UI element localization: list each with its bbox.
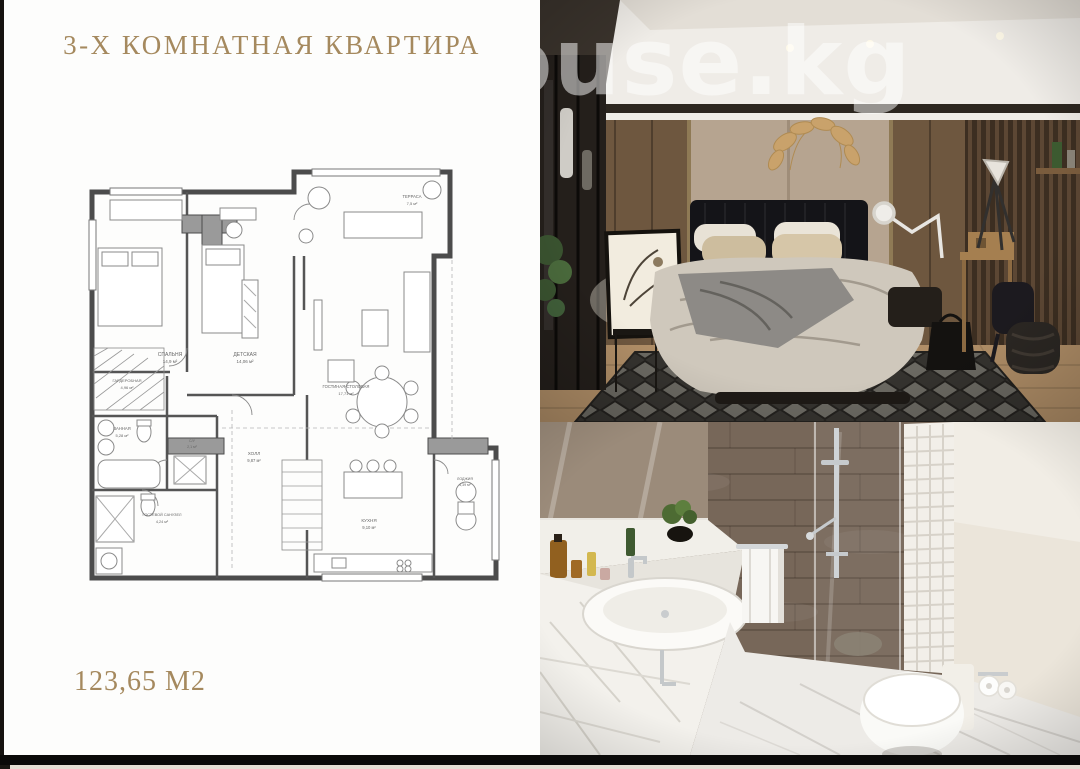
total-area-label: 123,65 М2 (74, 666, 206, 698)
room-label-guest-wc: ГОСТЕВОЙ САНУЗЕЛ (143, 513, 182, 517)
room-area-hall: 9,87 м² (247, 458, 261, 463)
room-label-wc: С/У (189, 439, 196, 443)
room-area-loggia: 4,39 м² (459, 483, 471, 487)
room-label-wardrobe: ГАРДЕРОБНАЯ (112, 378, 141, 383)
bedroom-render (540, 0, 1080, 422)
room-area-children: 14,06 м² (236, 359, 254, 364)
listing-page: 3-Х КОМНАТНАЯ КВАРТИРА (0, 0, 1080, 769)
room-area-living: 17,71 м² (338, 391, 354, 396)
left-edge-bar (0, 0, 4, 769)
floorplan-panel: 3-Х КОМНАТНАЯ КВАРТИРА (4, 0, 540, 755)
room-label-loggia: ЛОДЖИЯ (457, 477, 473, 481)
room-area-terrace: 7,5 м² (407, 201, 418, 206)
room-area-guest-wc: 4,24 м² (156, 520, 169, 524)
floor-plan-drawing: СПАЛЬНЯ 14,9 м² ДЕТСКАЯ 14,06 м² ТЕРРАСА… (82, 160, 502, 592)
room-label-bedroom: СПАЛЬНЯ (158, 352, 183, 358)
bathroom-vignette (540, 422, 1080, 755)
bottom-frame-bar (0, 755, 1080, 765)
room-area-wc: 2,1 м² (187, 445, 197, 449)
bathroom-photo (540, 422, 1080, 755)
bedroom-vignette (540, 0, 1080, 422)
floor-plan: СПАЛЬНЯ 14,9 м² ДЕТСКАЯ 14,06 м² ТЕРРАСА… (82, 160, 502, 592)
room-label-terrace: ТЕРРАСА (402, 194, 421, 199)
room-area-kitchen: 9,10 м² (362, 525, 376, 530)
room-label-living: ГОСТИНАЯ-СТОЛОВАЯ (323, 384, 370, 389)
page-title: 3-Х КОМНАТНАЯ КВАРТИРА (4, 30, 540, 61)
room-area-bath: 5,28 м² (116, 433, 130, 438)
room-label-hall: ХОЛЛ (248, 451, 260, 456)
bedroom-photo: ouse.kg (540, 0, 1080, 422)
room-label-bath: ВАННАЯ (113, 426, 130, 431)
bathroom-render (540, 422, 1080, 755)
room-area-bedroom: 14,9 м² (163, 359, 178, 364)
photos-panel: ouse.kg (540, 0, 1080, 755)
room-area-wardrobe: 4,96 м² (121, 385, 135, 390)
bottom-sliver (0, 765, 1080, 769)
room-label-kitchen: КУХНЯ (361, 518, 376, 523)
bottom-sliver-notch (0, 765, 10, 769)
room-label-children: ДЕТСКАЯ (233, 352, 257, 358)
